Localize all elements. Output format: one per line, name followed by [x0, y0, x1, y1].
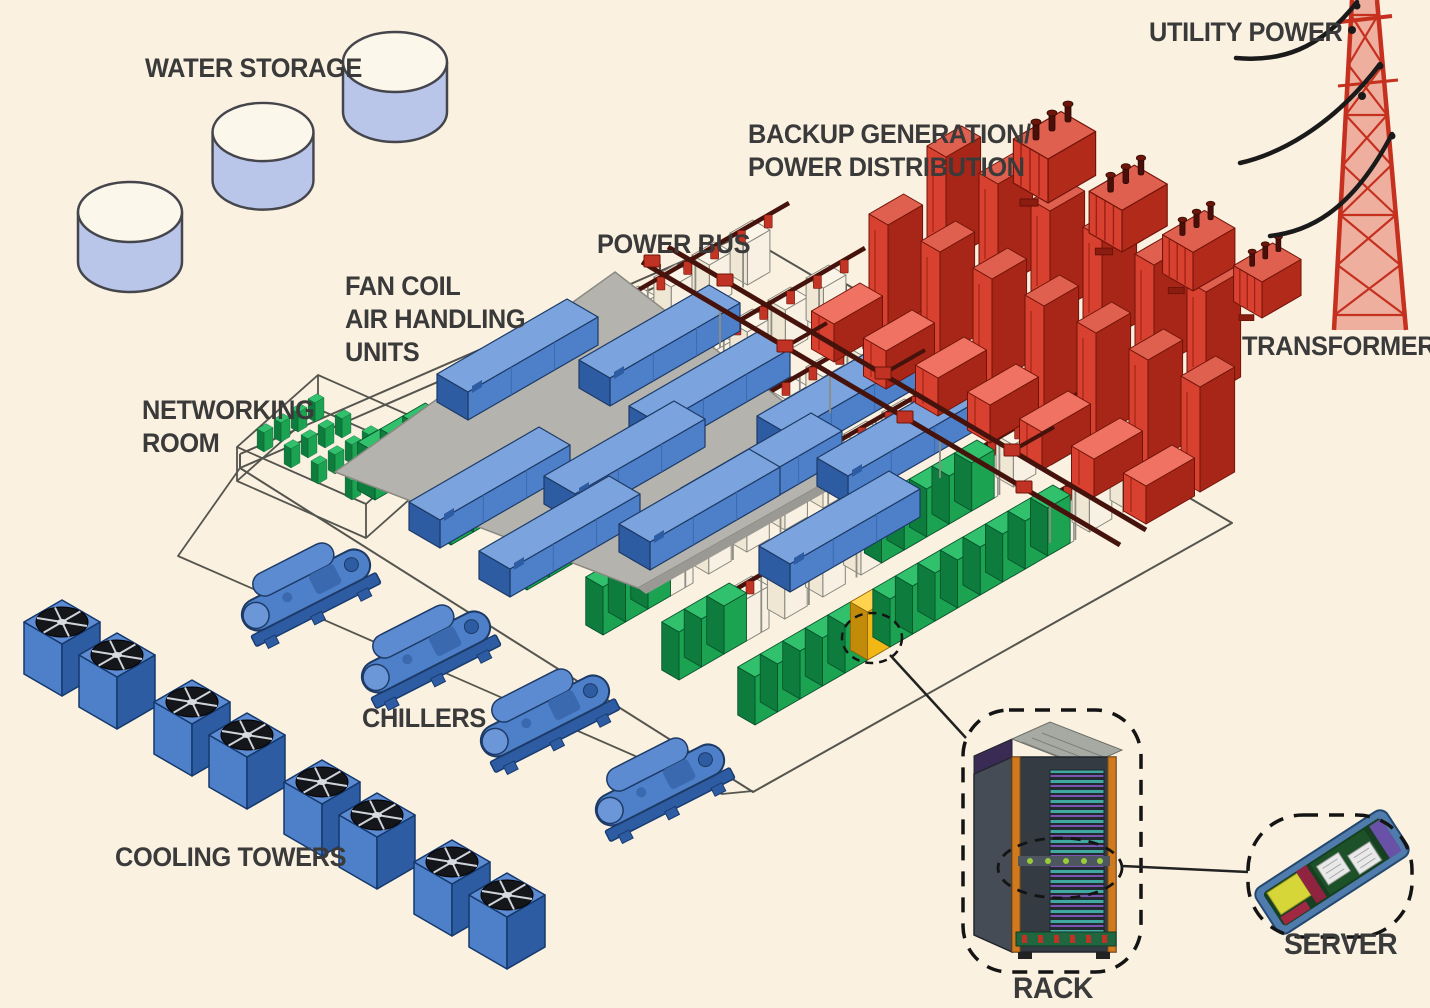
label-cooling-towers: COOLING TOWERS: [115, 841, 346, 874]
label-backup-generation-1: BACKUP GENERATION/: [748, 118, 1031, 151]
label-networking-2: ROOM: [142, 427, 219, 460]
label-networking-1: NETWORKING: [142, 394, 314, 427]
label-chillers: CHILLERS: [362, 702, 486, 735]
rack-callout-line: [890, 655, 966, 738]
label-utility-power: UTILITY POWER: [1149, 16, 1342, 49]
label-backup-generation-2: POWER DISTRIBUTION: [748, 151, 1025, 184]
label-transformers: TRANSFORMERS: [1242, 330, 1430, 363]
label-server: SERVER: [1284, 928, 1397, 961]
label-rack: RACK: [1013, 972, 1093, 1005]
rack-callout: [842, 613, 1141, 972]
rack-detail: [974, 722, 1122, 959]
label-water-storage: WATER STORAGE: [145, 52, 362, 85]
label-power-bus: POWER BUS: [597, 228, 750, 261]
server-callout: [1122, 807, 1412, 937]
label-fan-coil-1: FAN COIL: [345, 270, 460, 303]
label-fan-coil-3: UNITS: [345, 336, 419, 369]
datacenter-diagram: WATER STORAGE UTILITY POWER BACKUP GENER…: [0, 0, 1430, 1008]
label-fan-coil-2: AIR HANDLING: [345, 303, 525, 336]
